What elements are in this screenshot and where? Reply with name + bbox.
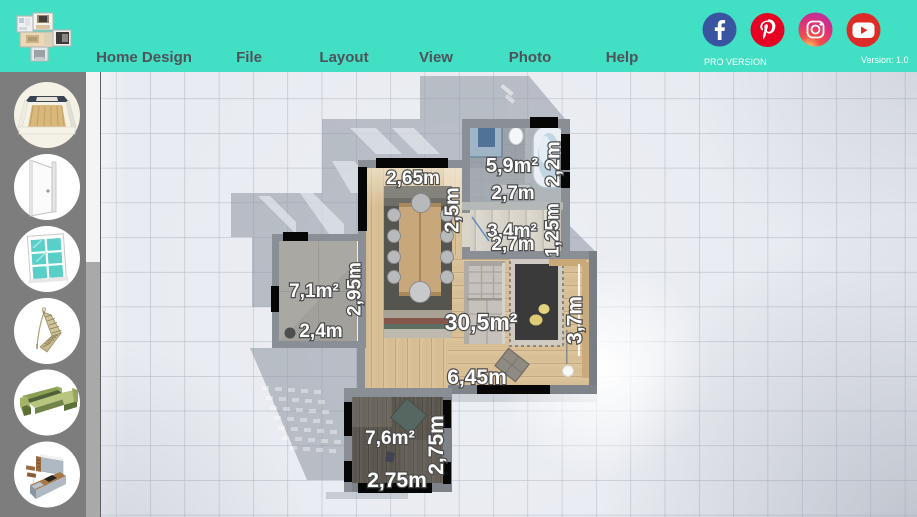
- svg-text:2,65m: 2,65m: [386, 168, 440, 189]
- svg-text:2,7m: 2,7m: [491, 234, 534, 255]
- svg-text:5,9m²: 5,9m²: [486, 155, 539, 177]
- svg-text:2,2m: 2,2m: [543, 141, 565, 187]
- svg-text:2,75m: 2,75m: [425, 415, 448, 475]
- svg-text:2,4m: 2,4m: [299, 321, 342, 342]
- svg-text:2,7m: 2,7m: [491, 183, 534, 204]
- svg-text:2,95m: 2,95m: [345, 262, 366, 316]
- svg-text:2,5m: 2,5m: [442, 187, 464, 233]
- svg-text:7,1m²: 7,1m²: [289, 281, 339, 302]
- svg-text:3,7m: 3,7m: [564, 296, 587, 344]
- svg-text:30,5m²: 30,5m²: [445, 309, 518, 335]
- svg-text:1,25m: 1,25m: [543, 203, 564, 257]
- svg-text:7,6m²: 7,6m²: [365, 428, 415, 449]
- svg-text:2,75m: 2,75m: [367, 469, 427, 492]
- svg-text:6,45m: 6,45m: [447, 366, 507, 389]
